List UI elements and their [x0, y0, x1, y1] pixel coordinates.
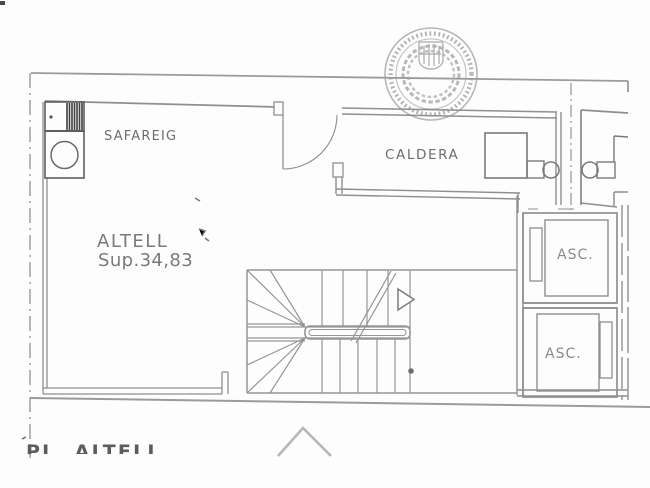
- stair-elevator-dividing-wall: [517, 196, 523, 395]
- elevator-top-counterweight: [530, 228, 542, 281]
- stair-upper-treads: [322, 270, 388, 327]
- plan-title-clipped: PL. ALTELL: [26, 441, 201, 454]
- neighbor-unit-bottom-wall: [581, 192, 628, 207]
- elevator-bottom-counterweight: [600, 322, 612, 378]
- stair-winder-treads-upper: [247, 270, 305, 327]
- boiler-pipe-box: [527, 161, 544, 178]
- wall-stub-near-stairs: [222, 372, 228, 394]
- caldera-door: [283, 115, 337, 169]
- counter-knob-icon: [49, 115, 52, 118]
- room-label-caldera: CALDERA: [385, 147, 459, 163]
- neighbor-boiler-outline: [614, 136, 628, 162]
- scan-corner-mark: [0, 1, 5, 5]
- stair-enclosure: [247, 270, 517, 393]
- altell-left-wall: [43, 178, 47, 394]
- altell-bottom-wall: [43, 388, 222, 394]
- room-label-altell: ALTELL: [97, 231, 168, 252]
- stair-run-edges: [247, 270, 410, 393]
- elevator-shafts: [517, 209, 628, 397]
- north-chevron-mark: [278, 428, 331, 456]
- scanned-floorplan-page: SAFAREIG CALDERA ALTELL Sup.34,83 ASC. A…: [0, 0, 650, 488]
- room-label-safareig: SAFAREIG: [104, 129, 177, 144]
- caldera-top-wall: [342, 108, 557, 118]
- stair-direction-arrow-icon: [398, 289, 414, 310]
- seal-laurel-wreath-inner: [408, 51, 454, 97]
- room-label-elevator-top: ASC.: [557, 247, 594, 263]
- door-jamb-left: [274, 102, 283, 115]
- stair-winder-treads-lower: [247, 338, 305, 393]
- washing-machine-drum-icon: [51, 142, 78, 169]
- stair-handrail-outer: [305, 326, 410, 339]
- neighbor-unit-walls: [581, 110, 628, 205]
- caldera-bottom-wall: [336, 189, 520, 213]
- scan-speck: [199, 229, 205, 236]
- caldera-right-wall: [556, 112, 561, 205]
- scan-artifacts: [0, 1, 209, 439]
- stair-lower-treads: [322, 338, 395, 393]
- scan-speck: [22, 437, 26, 439]
- neighbor-valve-icon: [582, 162, 598, 178]
- neighbor-fixtures: [582, 136, 628, 178]
- scan-speck: [205, 238, 209, 241]
- caldera-left-wall: [336, 177, 342, 194]
- room-area-label: Sup.34,83: [98, 250, 193, 271]
- room-label-elevator-bottom: ASC.: [545, 346, 582, 362]
- counter-hatch-pattern: [67, 103, 82, 130]
- bottom-boundary-wall: [30, 398, 650, 407]
- seal-coat-of-arms: [419, 42, 443, 69]
- seal-inner-ring: [396, 39, 466, 109]
- laundry-fixtures: [45, 102, 84, 178]
- top-boundary-wall: [31, 73, 628, 92]
- column-dot: [408, 368, 414, 374]
- stair-break-line: [351, 271, 396, 343]
- neighbor-pipe-box: [597, 162, 615, 178]
- door-jamb-right: [333, 163, 343, 177]
- boiler-icon: [485, 133, 527, 178]
- door-swing-arc: [283, 115, 337, 169]
- boiler-fixtures: [485, 133, 559, 178]
- scan-speck: [195, 198, 200, 201]
- official-seal-stamp-icon: [385, 28, 477, 120]
- staircase: [247, 270, 517, 393]
